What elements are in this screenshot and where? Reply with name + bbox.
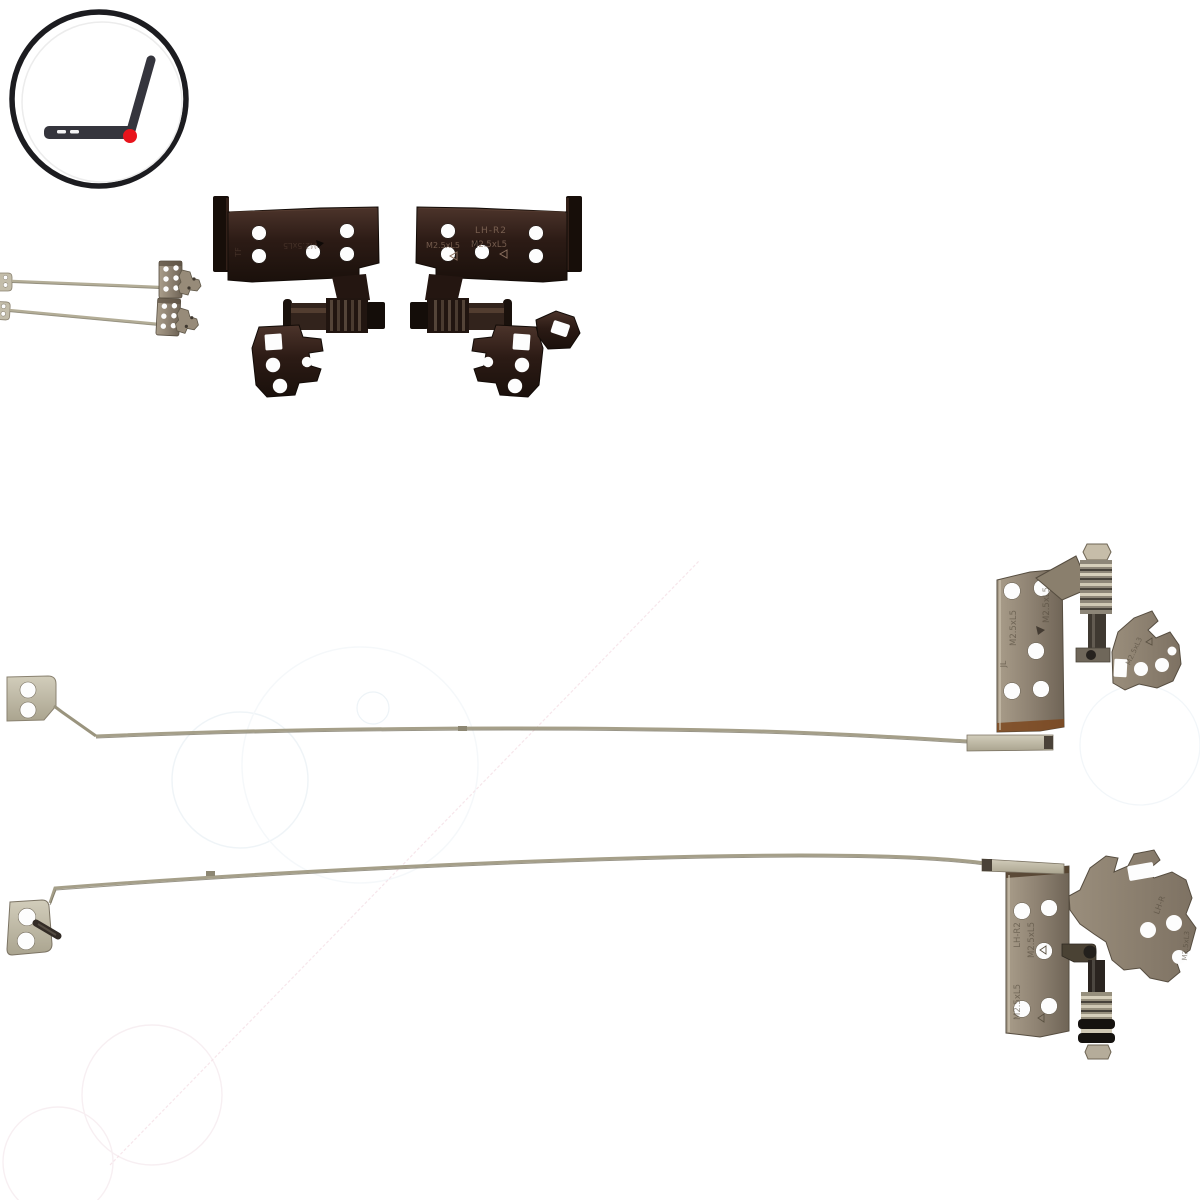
engraving-model: LH-R2 (475, 226, 507, 236)
laptop-base-detail (70, 130, 79, 134)
screw-hole (1004, 583, 1021, 600)
engraving-model: LH-R2 (1013, 922, 1023, 948)
engraving-code: JL (999, 660, 1008, 668)
hinge-rail-upper: M2.5xL5 M2.5xL5 JL M2.5xL3 (7, 544, 1181, 751)
bracket-foot (982, 859, 1064, 874)
rail-joint (206, 871, 215, 876)
rail-joint (458, 726, 467, 731)
screw-hole (1004, 683, 1021, 700)
barrel-shaft-highlight (1092, 960, 1095, 994)
screw-hole (1033, 681, 1050, 698)
knuckle-pin (1086, 650, 1096, 660)
rail-wire (50, 855, 1006, 903)
product-photo-canvas: M2.5xL5 TF LH-R2 M2.5xL5 M2.5xL5 (0, 0, 1200, 1200)
screw-hole (1134, 662, 1148, 676)
engraving-screw-spec: M2.5xL3 (1181, 931, 1192, 961)
barrel-rubber-ring (1078, 1019, 1115, 1029)
engraving-screw-spec: M2.5xL5 (471, 240, 507, 250)
barrel-ring-gap (1081, 1029, 1112, 1033)
dark-hinge-left: M2.5xL5 TF (213, 196, 385, 397)
screw-hole (1014, 903, 1031, 920)
logo-ring (12, 12, 186, 186)
mini-hinge-rail-top (0, 261, 201, 298)
dark-hinge-right: LH-R2 M2.5xL5 M2.5xL5 (410, 196, 582, 397)
product-photo: M2.5xL5 TF LH-R2 M2.5xL5 M2.5xL5 (0, 0, 1200, 1200)
engraving-screw-spec: M2.5xL5 (1042, 587, 1052, 623)
engraving-code: TF (234, 247, 243, 258)
screw-hole (1041, 998, 1058, 1015)
hinge-hex-nut (1085, 1045, 1111, 1059)
screw-hole (1168, 647, 1177, 656)
barrel-shaft (1088, 614, 1106, 648)
engraving-screw-spec: M2.5xL5 (1027, 922, 1037, 958)
hinge-dot-icon (123, 129, 137, 143)
engraving-screw-spec: M2.5xL5 (426, 241, 460, 250)
screw-hole (20, 702, 36, 718)
engraving-screw-spec: M2.5xL5 (1013, 984, 1023, 1020)
rail-bend (54, 706, 96, 736)
bracket-foot (967, 735, 1053, 751)
barrel-shaft (1088, 960, 1105, 994)
hinge-rail-lower: LH-R2 M2.5xL5 M2.5xL5 LH-R M2.5xL3 (7, 850, 1196, 1059)
screw-hole (1140, 922, 1156, 938)
screw-hole (1166, 915, 1182, 931)
screw-hole (20, 682, 36, 698)
engraving-screw-spec: M2.5xL5 (283, 241, 317, 250)
screw-hole (1036, 943, 1053, 960)
barrel-rubber-ring (1078, 1033, 1115, 1043)
bracket-foot-tip (982, 859, 992, 871)
bracket-foot-tip (1044, 736, 1053, 749)
screw-hole (1028, 643, 1045, 660)
screw-hole (1041, 900, 1058, 917)
knuckle-pin (1084, 946, 1097, 959)
screw-hole (1155, 658, 1169, 672)
screw-hole (17, 932, 35, 950)
hinge-hex-nut (1083, 544, 1111, 560)
engraving-screw-spec: M2.5xL5 (1009, 610, 1019, 646)
laptop-base-detail (57, 130, 66, 134)
open-laptop-hinge-logo (12, 12, 186, 186)
rail-wire-shadow (50, 857, 1006, 905)
barrel-shaft-highlight (1092, 614, 1095, 648)
